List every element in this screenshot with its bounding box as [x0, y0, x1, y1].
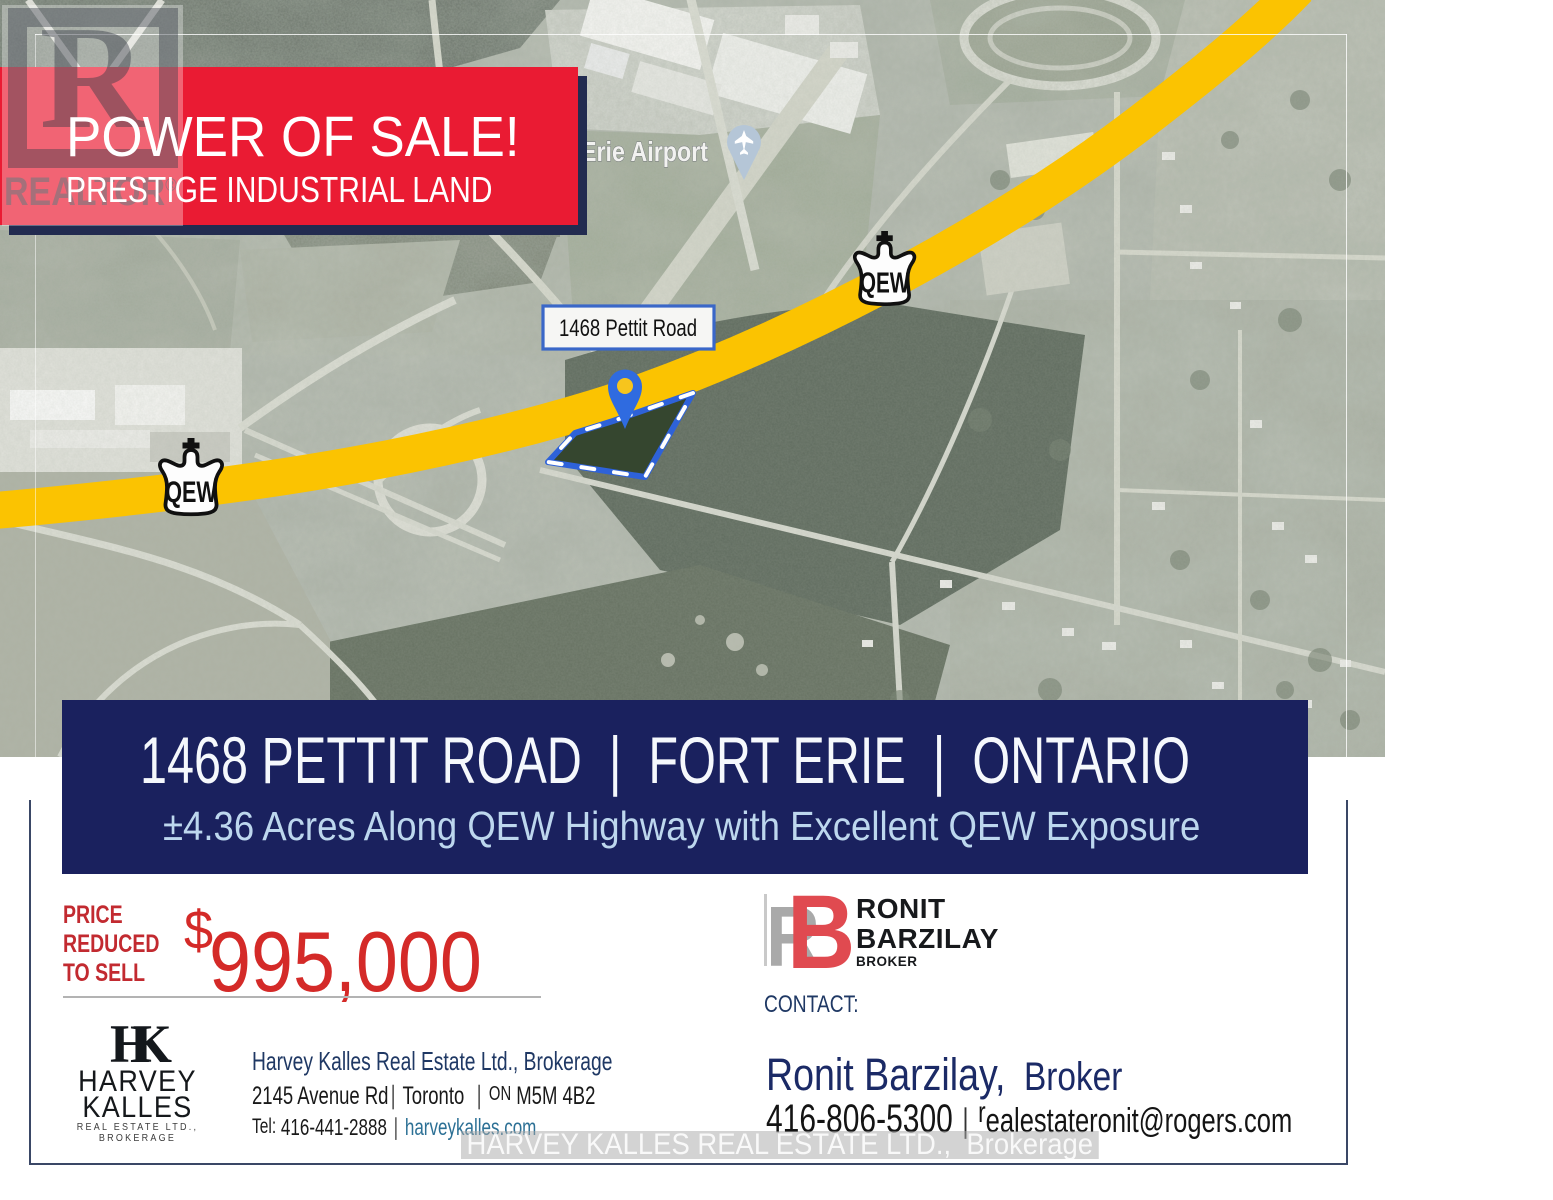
svg-text:Erie Airport: Erie Airport — [581, 136, 708, 167]
svg-text:1468 Pettit Road: 1468 Pettit Road — [559, 315, 697, 342]
svg-text:B: B — [787, 890, 855, 974]
